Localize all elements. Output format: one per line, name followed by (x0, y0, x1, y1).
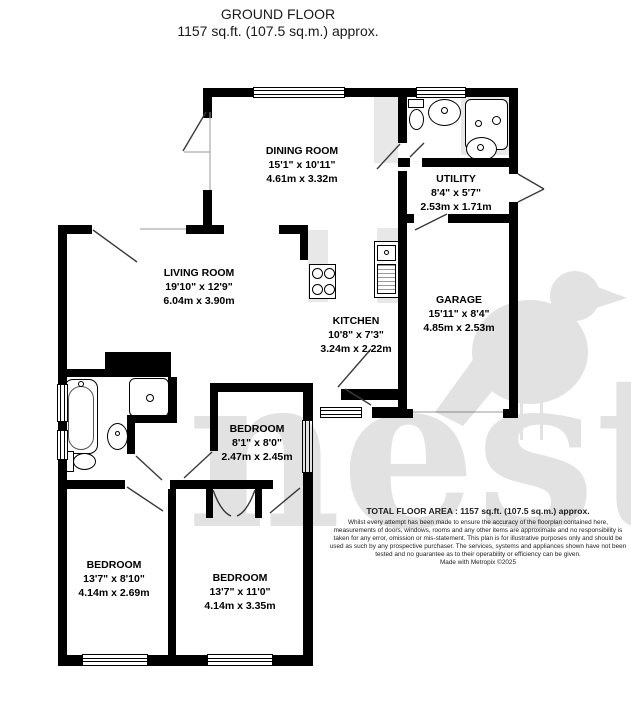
wall-segment (186, 225, 224, 234)
hob-burner (324, 284, 335, 295)
room-name: UTILITY (420, 172, 491, 186)
window (253, 87, 345, 98)
bath-tap (78, 381, 84, 387)
room-label-bedroom-middle: BEDROOM 8'1" x 8'0" 2.47m x 2.45m (221, 422, 292, 464)
wall-segment (67, 369, 107, 377)
window (207, 654, 273, 666)
floorplan-page: GROUND FLOOR 1157 sq.ft. (107.5 sq.m.) a… (0, 0, 631, 720)
wc-basin-detail (441, 107, 448, 114)
kitchen-sink-drainer (377, 264, 396, 294)
wall-segment (509, 97, 518, 174)
wall-segment (203, 97, 212, 118)
plan-title-area: 1157 sq.ft. (107.5 sq.m.) approx. (88, 23, 468, 40)
room-dims-imperial: 15'1" x 10'11" (266, 158, 338, 172)
bathtub-inner (68, 386, 94, 450)
room-dims-imperial: 8'1" x 8'0" (221, 436, 292, 450)
room-dims-metric: 2.47m x 2.45m (221, 450, 292, 464)
room-name: GARAGE (423, 293, 494, 307)
room-dims-metric: 4.14m x 3.35m (204, 599, 275, 613)
bathroom-basin-tap (115, 431, 120, 436)
door-lines-overlay (0, 0, 631, 720)
wall-segment (127, 423, 135, 454)
window (416, 87, 466, 98)
window (82, 654, 148, 666)
room-dims-metric: 2.53m x 1.71m (420, 200, 491, 214)
room-name: BEDROOM (204, 571, 275, 585)
room-name: KITCHEN (320, 314, 391, 328)
bathroom-basin (107, 423, 128, 450)
credit-text: Made with Metropix ©2025 (327, 559, 629, 567)
footer-note: TOTAL FLOOR AREA : 1157 sq.ft. (107.5 sq… (327, 506, 629, 567)
wall-segment (398, 158, 410, 167)
room-dims-imperial: 10'8" x 7'3" (320, 328, 391, 342)
room-name: BEDROOM (78, 558, 149, 572)
shower-drain (146, 394, 154, 402)
wc-shower-tap (492, 116, 501, 125)
wall-segment (303, 473, 313, 665)
room-dims-imperial: 13'7" x 8'10" (78, 572, 149, 586)
wall-segment (279, 225, 308, 234)
wardrobe-side (206, 489, 213, 518)
room-dims-imperial: 13'7" x 11'0" (204, 585, 275, 599)
room-name: DINING ROOM (266, 144, 338, 158)
utility-basin-detail (477, 144, 484, 151)
dining-counter (374, 97, 398, 163)
wall-segment (341, 389, 398, 400)
room-label-bedroom-right: BEDROOM 13'7" x 11'0" 4.14m x 3.35m (204, 571, 275, 613)
wall-segment (170, 480, 273, 489)
disclaimer-text: Whilst every attempt has been made to en… (327, 519, 629, 559)
plan-title-floor: GROUND FLOOR (88, 6, 468, 23)
wc-toilet (409, 109, 424, 130)
room-label-bedroom-left: BEDROOM 13'7" x 8'10" 4.14m x 2.69m (78, 558, 149, 600)
wall-segment (503, 409, 518, 418)
wall-segment (210, 392, 218, 451)
wall-segment (300, 234, 308, 260)
wall-segment (398, 223, 407, 409)
room-dims-metric: 4.14m x 2.69m (78, 586, 149, 600)
wall-segment (398, 97, 407, 143)
toilet (73, 453, 96, 470)
front-door[interactable] (320, 407, 362, 418)
wc-shower-drain (475, 120, 482, 127)
room-dims-imperial: 15'11" x 8'4" (423, 307, 494, 321)
room-dims-metric: 4.61m x 3.32m (266, 172, 338, 186)
room-dims-metric: 6.04m x 3.90m (163, 294, 234, 308)
window (57, 384, 68, 422)
hob-burner (324, 268, 335, 279)
hob-burner (312, 284, 323, 295)
room-dims-metric: 4.85m x 2.53m (423, 321, 494, 335)
window (57, 430, 68, 460)
room-label-kitchen: KITCHEN 10'8" x 7'3" 3.24m x 2.22m (320, 314, 391, 356)
room-dims-imperial: 19'10" x 12'9" (163, 280, 234, 294)
room-name: BEDROOM (221, 422, 292, 436)
room-label-garage: GARAGE 15'11" x 8'4" 4.85m x 2.53m (423, 293, 494, 335)
room-label-living: LIVING ROOM 19'10" x 12'9" 6.04m x 3.90m (163, 266, 234, 308)
room-name: LIVING ROOM (163, 266, 234, 280)
room-dims-metric: 3.24m x 2.22m (320, 342, 391, 356)
room-label-dining: DINING ROOM 15'1" x 10'11" 4.61m x 3.32m (266, 144, 338, 186)
room-label-utility: UTILITY 8'4" x 5'7" 2.53m x 1.71m (420, 172, 491, 214)
wall-segment (203, 88, 518, 97)
wardrobe-side (255, 489, 262, 518)
wall-segment (168, 377, 177, 417)
wall-segment (422, 158, 509, 167)
wall-segment (168, 489, 176, 655)
hob-burner (312, 268, 323, 279)
wall-segment (58, 480, 125, 489)
kitchen-sink-drainhole (384, 250, 389, 255)
room-dims-imperial: 8'4" x 5'7" (420, 186, 491, 200)
wall-segment (210, 383, 310, 392)
wall-segment (398, 214, 414, 223)
wall-segment (448, 214, 518, 223)
wall-segment (509, 223, 518, 418)
window (302, 420, 313, 473)
wc-cistern (408, 99, 424, 108)
wall-segment (105, 352, 171, 377)
wall-segment (127, 415, 177, 423)
plan-title: GROUND FLOOR 1157 sq.ft. (107.5 sq.m.) a… (88, 6, 468, 39)
total-floor-area: TOTAL FLOOR AREA : 1157 sq.ft. (107.5 sq… (327, 506, 629, 516)
floorplan-drawing: DINING ROOM 15'1" x 10'11" 4.61m x 3.32m… (0, 0, 631, 720)
wall-segment (372, 407, 406, 418)
